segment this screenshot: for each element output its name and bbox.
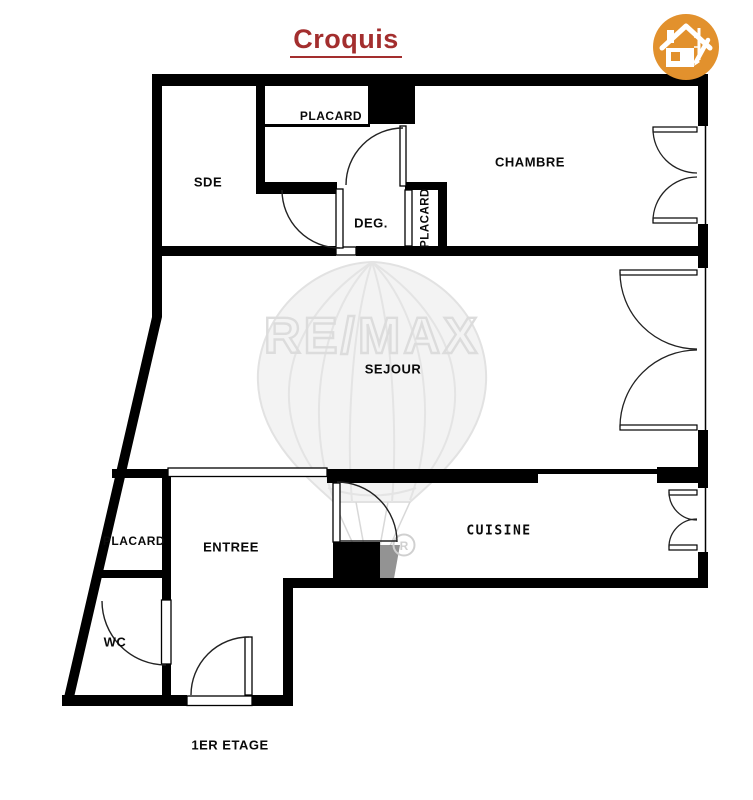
room-label-placard-top: PLACARD: [300, 110, 362, 122]
room-label-deg: DEG.: [354, 217, 388, 230]
room-label-sde: SDE: [194, 176, 222, 189]
room-label-chambre: CHAMBRE: [495, 156, 565, 169]
room-label-entree: ENTREE: [203, 541, 259, 554]
page-title: Croquis: [256, 24, 436, 58]
door-leaf-entry: [245, 637, 252, 695]
house-sketch-icon: [653, 14, 719, 80]
room-label-sejour: SEJOUR: [365, 363, 421, 376]
opening-entree-sejour: [168, 468, 327, 477]
door-swing-sde: [282, 190, 340, 248]
door-leaf-cuisine: [333, 483, 340, 542]
door-swing-wc: [102, 601, 166, 665]
placard-partition: [405, 190, 412, 246]
room-label-cuisine: CUISINE: [466, 525, 531, 538]
door-swing-entry: [191, 637, 249, 695]
wall-left-upper: [152, 74, 162, 256]
floor-label: 1ER ETAGE: [191, 738, 268, 753]
door-gap-wc: [162, 600, 172, 664]
door-leaf-chambre: [400, 126, 406, 186]
remax-balloon-watermark-icon: RE/MAX R: [258, 262, 486, 584]
room-label-placard-chambre: PLACARD: [420, 188, 432, 248]
entry-door-sill: [187, 696, 252, 706]
watermark-brand-text: RE/MAX: [264, 307, 480, 364]
room-label-placard-entree: PLACARD: [103, 535, 165, 547]
registered-mark: R: [400, 539, 409, 553]
half-wall-sejour-cuisine: [538, 469, 657, 474]
closet-front-line: [263, 124, 370, 127]
windows-layer: [620, 126, 710, 552]
wall-stub-cuisine: [333, 542, 380, 588]
door-leaf-sde: [336, 189, 343, 248]
duct-block: [368, 86, 415, 124]
room-label-wc: WC: [104, 636, 127, 649]
window-chambre: [653, 129, 697, 173]
wall-top: [152, 74, 708, 86]
floor-plan-page: RE/MAX R: [0, 0, 753, 800]
floor-plan-drawing: RE/MAX R: [0, 0, 753, 800]
door-swing-chambre: [346, 128, 403, 185]
window-sejour: [620, 272, 697, 349]
window-cuisine: [669, 492, 697, 520]
